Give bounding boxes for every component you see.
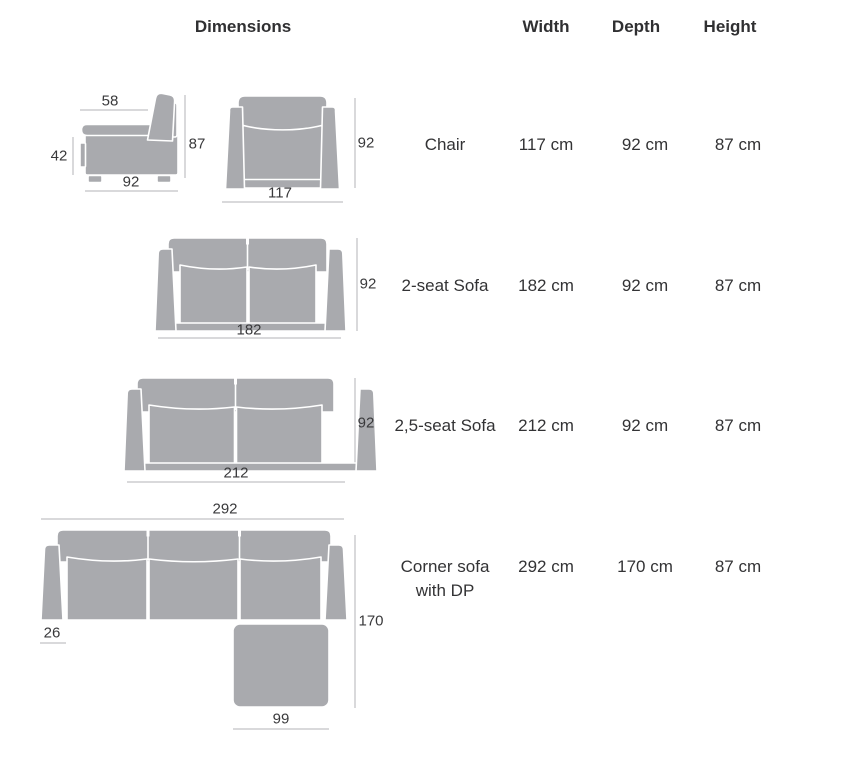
column-header-width: Width bbox=[522, 17, 569, 37]
depth-value: 92 cm bbox=[622, 135, 668, 155]
armrest-panel bbox=[80, 143, 86, 167]
seat-cushion bbox=[249, 265, 316, 325]
25seat-sofa-drawing bbox=[103, 372, 398, 487]
dimension-label-height: 92 bbox=[360, 276, 377, 293]
width-value: 182 cm bbox=[518, 276, 574, 296]
left-armrest bbox=[124, 389, 145, 471]
left-armrest bbox=[226, 107, 245, 189]
product-name: 2-seat Sofa bbox=[402, 276, 489, 296]
seat-cushion bbox=[240, 557, 321, 620]
seat-cushion bbox=[180, 265, 247, 325]
height-value: 87 cm bbox=[715, 276, 761, 296]
back-cushion bbox=[148, 93, 175, 141]
chair-side-view-figure: 58 42 87 92 bbox=[40, 85, 210, 215]
dimension-label-width: 212 bbox=[223, 465, 248, 482]
width-value: 292 cm bbox=[518, 557, 574, 577]
base bbox=[131, 463, 370, 471]
height-value: 87 cm bbox=[715, 557, 761, 577]
2seat-sofa-figure: 92 182 bbox=[118, 232, 383, 344]
width-value: 117 cm bbox=[519, 135, 574, 155]
chair-front-view-drawing bbox=[218, 88, 378, 213]
backrest-notch bbox=[246, 238, 249, 245]
backrest bbox=[57, 530, 331, 562]
dimension-label-height: 92 bbox=[358, 415, 375, 432]
column-header-dimensions: Dimensions bbox=[195, 17, 291, 37]
chaise-section bbox=[233, 624, 329, 707]
backrest-notch bbox=[147, 530, 150, 537]
backrest-notch bbox=[234, 378, 237, 385]
depth-value: 92 cm bbox=[622, 276, 668, 296]
25seat-sofa-figure: 92 212 bbox=[103, 372, 398, 487]
dimension-label-chaise-width: 99 bbox=[273, 711, 290, 728]
depth-value: 92 cm bbox=[622, 416, 668, 436]
seat-cushion bbox=[242, 125, 324, 185]
left-armrest bbox=[155, 249, 176, 331]
right-armrest bbox=[325, 249, 346, 331]
dimensions-spec-sheet: Dimensions Width Depth Height Chair 117 … bbox=[0, 0, 846, 768]
chair-front-view-figure: 92 117 bbox=[218, 88, 378, 213]
backrest-notch bbox=[238, 530, 241, 537]
dimension-label-total-width: 292 bbox=[212, 501, 237, 518]
dimension-label-seat-depth: 58 bbox=[102, 93, 119, 110]
column-header-depth: Depth bbox=[612, 17, 660, 37]
backrest bbox=[238, 96, 327, 131]
dimension-label-total-depth: 170 bbox=[358, 613, 383, 630]
width-value: 212 cm bbox=[518, 416, 574, 436]
column-header-height: Height bbox=[704, 17, 757, 37]
product-name: 2,5-seat Sofa bbox=[394, 416, 495, 436]
left-armrest bbox=[41, 545, 63, 620]
product-name: Corner sofa with DP bbox=[401, 555, 490, 603]
dimension-label-seat-height: 42 bbox=[51, 148, 68, 165]
right-armrest bbox=[321, 107, 340, 189]
product-name: Chair bbox=[425, 135, 466, 155]
dimension-label-width: 117 bbox=[268, 185, 292, 202]
product-name-line1: Corner sofa bbox=[401, 555, 490, 579]
seat-cushion bbox=[67, 557, 147, 620]
right-armrest bbox=[325, 545, 347, 620]
height-value: 87 cm bbox=[715, 416, 761, 436]
dimension-label-width: 182 bbox=[236, 322, 261, 339]
depth-value: 170 cm bbox=[617, 557, 673, 577]
dimension-label-height: 92 bbox=[358, 135, 375, 152]
seat-cushion bbox=[237, 405, 323, 465]
chair-foot bbox=[157, 176, 171, 183]
corner-sofa-drawing bbox=[28, 498, 388, 738]
dimension-label-armrest-width: 26 bbox=[44, 625, 61, 642]
dimension-label-total-height: 87 bbox=[189, 136, 206, 153]
chair-foot bbox=[88, 176, 102, 183]
product-name-line2: with DP bbox=[401, 579, 490, 603]
corner-sofa-figure: 292 26 170 99 bbox=[28, 498, 388, 738]
seat-cushion bbox=[149, 405, 235, 465]
seat-cushion bbox=[149, 559, 238, 620]
height-value: 87 cm bbox=[715, 135, 761, 155]
dimension-label-total-depth: 92 bbox=[123, 174, 140, 191]
